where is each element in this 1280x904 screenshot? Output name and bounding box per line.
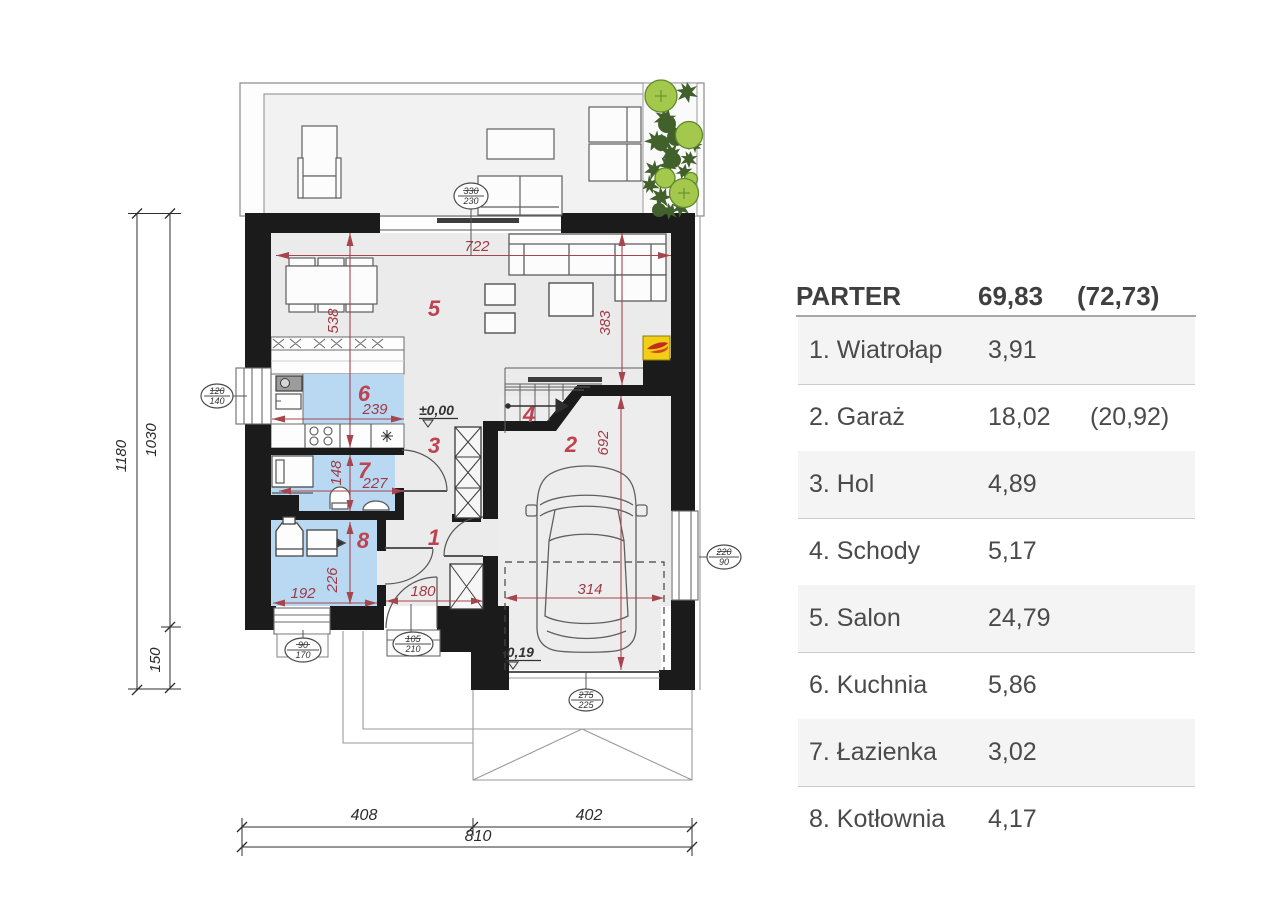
- svg-text:7: 7: [358, 458, 372, 483]
- svg-text:408: 408: [351, 807, 378, 824]
- svg-text:170: 170: [295, 650, 310, 660]
- svg-text:5: 5: [428, 296, 441, 321]
- svg-text:148: 148: [328, 460, 345, 486]
- svg-text:314: 314: [577, 581, 602, 598]
- svg-text:-0,19: -0,19: [502, 644, 534, 660]
- svg-text:1180: 1180: [113, 439, 130, 472]
- svg-text:225: 225: [577, 700, 594, 710]
- svg-text:2: 2: [564, 432, 578, 457]
- svg-text:226: 226: [324, 567, 341, 594]
- svg-text:383: 383: [597, 310, 614, 336]
- svg-text:4: 4: [522, 402, 535, 427]
- svg-text:±0,00: ±0,00: [419, 402, 454, 418]
- svg-text:220: 220: [715, 547, 731, 557]
- svg-text:150: 150: [147, 647, 164, 673]
- svg-text:90: 90: [719, 557, 729, 567]
- svg-text:538: 538: [325, 308, 342, 334]
- svg-text:210: 210: [404, 644, 420, 654]
- svg-text:692: 692: [595, 430, 612, 456]
- svg-text:8: 8: [357, 528, 370, 553]
- svg-text:1: 1: [428, 525, 440, 550]
- svg-text:230: 230: [462, 196, 478, 206]
- svg-text:1030: 1030: [143, 423, 160, 457]
- svg-text:3: 3: [428, 433, 440, 458]
- svg-text:402: 402: [576, 807, 603, 824]
- svg-text:275: 275: [577, 690, 594, 700]
- svg-text:140: 140: [209, 396, 224, 406]
- svg-text:722: 722: [464, 238, 490, 255]
- svg-text:105: 105: [405, 634, 421, 644]
- svg-text:120: 120: [209, 386, 224, 396]
- svg-text:330: 330: [463, 186, 478, 196]
- svg-text:6: 6: [358, 381, 371, 406]
- svg-text:192: 192: [290, 585, 316, 602]
- svg-text:90: 90: [298, 640, 308, 650]
- svg-text:180: 180: [410, 583, 436, 600]
- svg-text:810: 810: [465, 828, 492, 845]
